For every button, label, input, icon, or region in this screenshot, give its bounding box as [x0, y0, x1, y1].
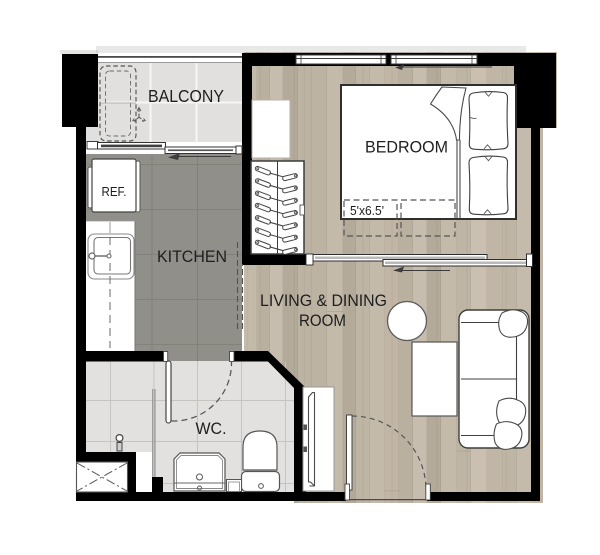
svg-text:BEDROOM: BEDROOM: [365, 138, 448, 157]
svg-text:WC.: WC.: [196, 419, 227, 438]
svg-text:KITCHEN: KITCHEN: [157, 247, 227, 266]
svg-text:LIVING & DINING: LIVING & DINING: [260, 291, 387, 310]
svg-text:BALCONY: BALCONY: [148, 86, 224, 106]
svg-text:5'x6.5': 5'x6.5': [350, 204, 384, 218]
svg-text:REF.: REF.: [102, 184, 127, 199]
svg-text:ROOM: ROOM: [299, 311, 346, 330]
